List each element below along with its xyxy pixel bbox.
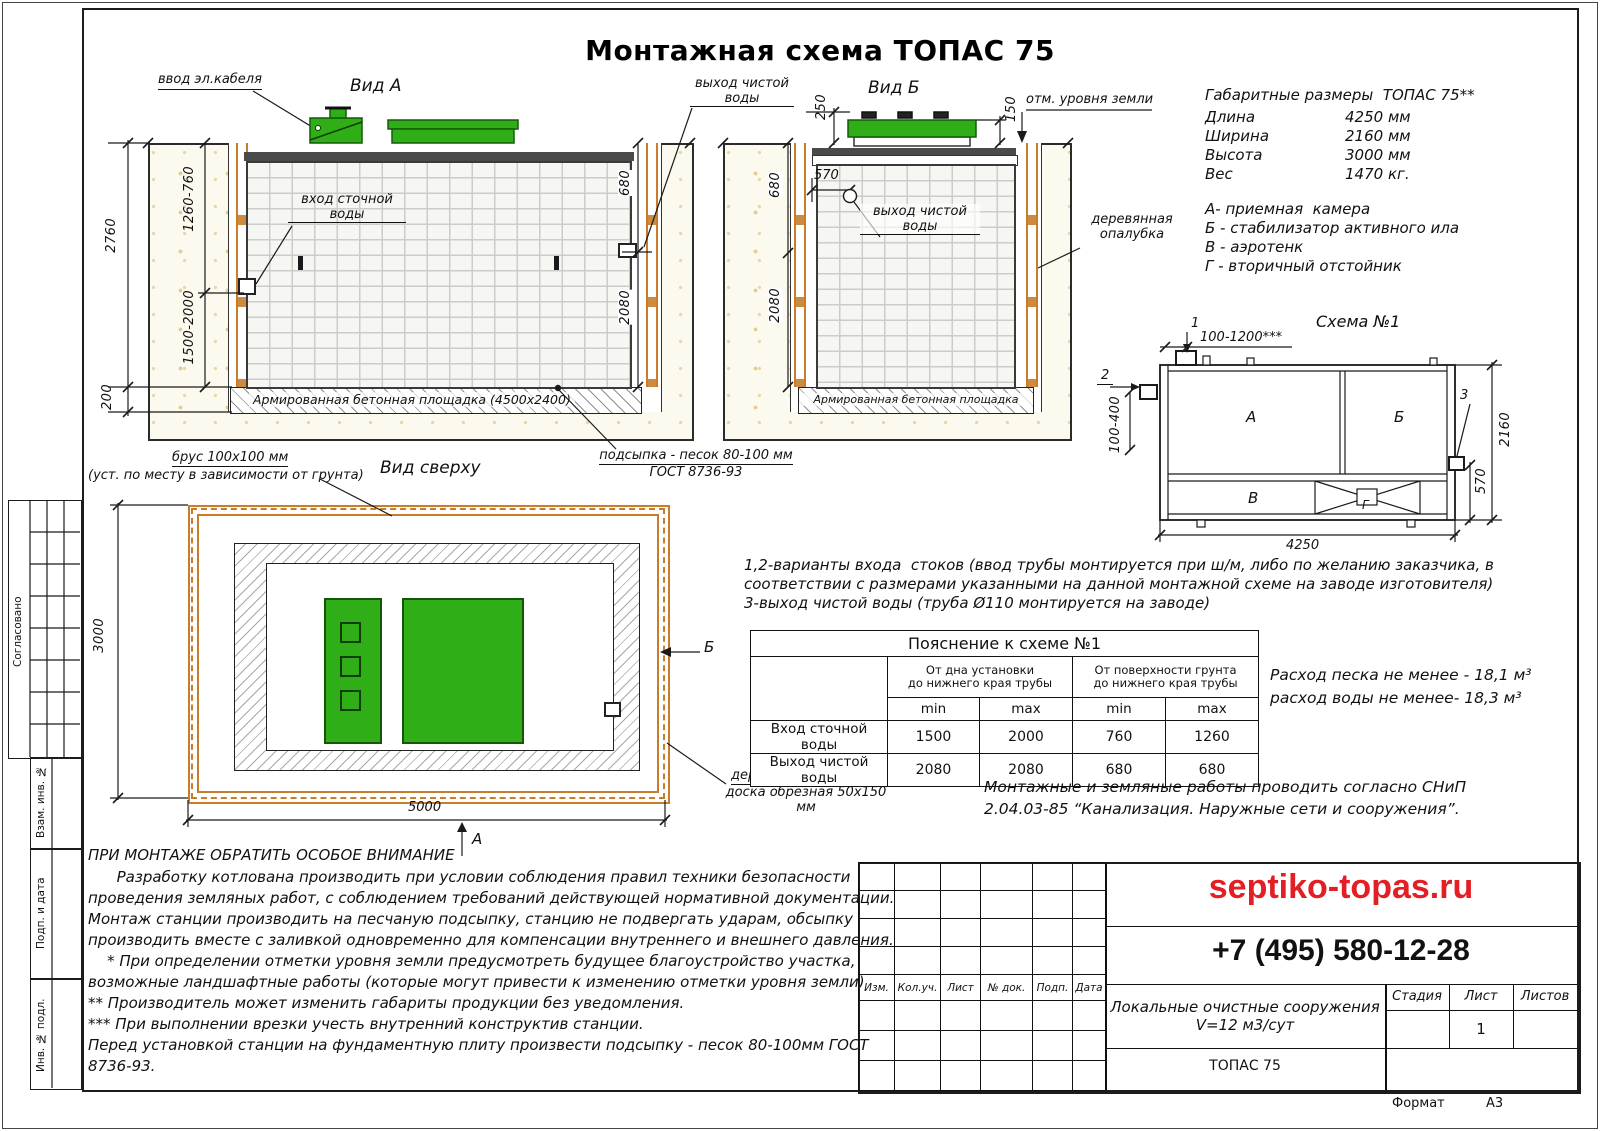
company-phone: +7 (495) 580-12-28	[1105, 934, 1577, 968]
row0-v2: 760	[1073, 721, 1166, 754]
stamp-divider-h1	[1105, 926, 1577, 927]
min-header-1: min	[888, 698, 980, 721]
consumption-note-1: расход воды не менее- 18,3 м³	[1270, 689, 1522, 707]
view-b-unit-top	[812, 148, 1016, 155]
legend-line-2: В - аэротенк	[1205, 238, 1303, 256]
top-view-vent-1	[340, 622, 361, 643]
legend-line-1: Б - стабилизатор активного ила	[1205, 219, 1459, 237]
view-b-dim-250: 250	[814, 94, 829, 120]
view-b-outlet-label: выход чистой воды	[860, 204, 980, 235]
top-view-beam-label: брус 100х100 мм	[172, 450, 288, 467]
schema-dim-570: 570	[1474, 468, 1489, 494]
rev-header-list: Лист	[941, 975, 981, 1001]
attention-line-7: *** При выполнении врезки учесть внутрен…	[88, 1014, 644, 1035]
view-b-unit-body	[816, 164, 1016, 389]
view-b-dim-150: 150	[1004, 96, 1019, 122]
explanation-table-corner	[751, 657, 888, 721]
side-stamp-vzam-label: Взам. инв. №	[35, 762, 47, 842]
rev-header-podp: Подп.	[1033, 975, 1073, 1001]
explanation-table: Пояснение к схеме №1 От дна установки до…	[750, 630, 1259, 787]
overall-dim-value-0: 4250 мм	[1345, 108, 1411, 126]
snip-note-1: 2.04.03-85 “Канализация. Наружные сети и…	[984, 800, 1460, 818]
view-a-dim-2760: 2760	[104, 218, 119, 253]
overall-dim-label-1: Ширина	[1205, 127, 1269, 145]
legend-line-0: А- приемная камера	[1205, 200, 1370, 218]
product-name: ТОПАС 75	[1105, 1058, 1385, 1074]
overall-dim-value-2: 3000 мм	[1345, 146, 1411, 164]
top-view-beam-label2: (уст. по месту в зависимости от грунта)	[88, 468, 364, 483]
sheets-label: Листов	[1513, 989, 1577, 1004]
schema-dim-bottom: 4250	[1286, 538, 1319, 553]
rev-header-izm: Изм.	[859, 975, 895, 1001]
legend-line-3: Г - вторичный отстойник	[1205, 257, 1402, 275]
top-view-arrow-b-label: Б	[704, 638, 714, 656]
table-row: Вход сточной воды 1500 2000 760 1260	[751, 721, 1259, 754]
format-label: Формат	[1392, 1096, 1445, 1111]
attention-line-5: возможные ландшафтные работы (которые мо…	[88, 972, 865, 993]
overall-dim-value-3: 1470 кг.	[1345, 165, 1410, 183]
row1-label: Выход чистой воды	[751, 754, 888, 787]
view-b-dim-570: 570	[814, 168, 839, 183]
sand-note-line1: подсыпка - песок 80-100 мм	[599, 448, 793, 465]
view-a-outlet-pipe	[618, 243, 637, 258]
overall-dim-value-1: 2160 мм	[1345, 127, 1411, 145]
max-header-2: max	[1166, 698, 1259, 721]
attention-line-3: производить вместе с заливкой одновремен…	[88, 930, 894, 951]
attention-line-6: ** Производитель может изменить габариты…	[88, 993, 684, 1014]
view-b-title: Вид Б	[868, 78, 920, 98]
overall-dim-label-2: Высота	[1205, 146, 1263, 164]
rev-header-data: Дата	[1073, 975, 1106, 1001]
top-view-dim-3000: 3000	[92, 618, 107, 653]
stamp-divider-h2	[1105, 984, 1577, 985]
view-a-cable-label: ввод эл.кабеля	[158, 72, 262, 90]
view-b-ground-label: отм. уровня земли	[1026, 92, 1153, 107]
explanation-table-title: Пояснение к схеме №1	[751, 631, 1259, 657]
format-value: А3	[1486, 1096, 1503, 1111]
row0-v3: 1260	[1166, 721, 1259, 754]
view-b-dim-680: 680	[768, 172, 783, 198]
view-a-inlet-pipe	[238, 278, 256, 295]
page-title: Монтажная схема ТОПАС 75	[560, 34, 1080, 67]
variants-note-1: соответствии с размерами указанными на д…	[744, 575, 1493, 593]
schema-dim-right: 2160	[1498, 412, 1513, 447]
sheet-number: 1	[1449, 1020, 1513, 1038]
schema-compartment-v: В	[1248, 489, 1258, 507]
view-b-slab: Армированная бетонная площадка	[798, 387, 1034, 414]
attention-line-0: Разработку котлована производить при усл…	[88, 867, 850, 888]
explanation-table-group1: От дна установки до нижнего края трубы	[888, 657, 1073, 698]
schema-compartment-a: А	[1246, 408, 1256, 426]
top-view-outlet-port	[604, 702, 621, 717]
overall-dims-title: Габаритные размеры ТОПАС 75**	[1205, 86, 1475, 104]
stage-label: Стадия	[1385, 989, 1449, 1004]
view-b-slab-caption: Армированная бетонная площадка	[799, 393, 1033, 406]
schema-dim-top: 100-1200***	[1200, 330, 1282, 345]
drawing-sheet: Согласовано Взам. инв. № Подп. и дата Ин…	[0, 0, 1600, 1131]
rev-header-koluch: Кол.уч.	[895, 975, 941, 1001]
overall-dim-label-0: Длина	[1205, 108, 1255, 126]
view-a-slab-caption: Армированная бетонная площадка (4500х240…	[249, 392, 575, 407]
view-a-inlet-label: вход сточной воды	[288, 192, 406, 223]
group2-line2: до нижнего края трубы	[1073, 677, 1258, 690]
schema-compartment-g: Г	[1362, 498, 1369, 512]
sand-note-line2: ГОСТ 8736-93	[650, 465, 743, 480]
schema-marker-2: 2	[1097, 368, 1113, 385]
row0-label: Вход сточной воды	[751, 721, 888, 754]
explanation-table-group2: От поверхности грунта до нижнего края тр…	[1073, 657, 1259, 698]
view-a-dim-1260-760: 1260-760	[182, 166, 197, 232]
max-header-1: max	[980, 698, 1073, 721]
view-a-slab: Армированная бетонная площадка (4500х240…	[230, 387, 642, 414]
object-name-line2: V=12 м3/сут	[1105, 1016, 1385, 1034]
view-b-formwork-right	[1026, 143, 1038, 387]
view-a-unit-top	[244, 152, 634, 161]
sand-note: подсыпка - песок 80-100 мм ГОСТ 8736-93	[598, 448, 794, 480]
top-view-vent-2	[340, 656, 361, 677]
group1-line2: до нижнего края трубы	[888, 677, 1072, 690]
top-view-arrow-a-label: А	[472, 830, 482, 848]
row0-v1: 2000	[980, 721, 1073, 754]
row0-v0: 1500	[888, 721, 980, 754]
side-stamp-podp-label: Подп. и дата	[35, 868, 47, 958]
variants-note-2: 3-выход чистой воды (труба Ø110 монтируе…	[744, 594, 1210, 612]
revision-table: Изм. Кол.уч. Лист № док. Подп. Дата	[858, 862, 1106, 1091]
attention-line-1: проведения земляных работ, с соблюдением…	[88, 888, 894, 909]
top-view-dim-5000: 5000	[408, 800, 441, 815]
attention-line-2: Монтаж станции производить на песчаную п…	[88, 909, 853, 930]
schema-marker-3: 3	[1460, 388, 1468, 403]
schema-title: Схема №1	[1316, 312, 1400, 331]
schema-marker-1: 1	[1191, 316, 1199, 331]
side-stamp-inv-label: Инв. № подл.	[35, 995, 47, 1075]
attention-title: ПРИ МОНТАЖЕ ОБРАТИТЬ ОСОБОЕ ВНИМАНИЕ	[88, 845, 455, 866]
top-view-vent-3	[340, 690, 361, 711]
view-a-dim-200: 200	[100, 384, 115, 410]
attention-line-4: * При определении отметки уровня земли п…	[88, 951, 856, 972]
side-stamp-agreed-label: Согласовано	[12, 562, 24, 702]
min-header-2: min	[1073, 698, 1166, 721]
consumption-note-0: Расход песка не менее - 18,1 м³	[1270, 666, 1531, 684]
view-b-dim-2080: 2080	[768, 288, 783, 323]
row1-v0: 2080	[888, 754, 980, 787]
view-a-dim-680: 680	[618, 170, 633, 196]
view-a-dim-2080: 2080	[618, 290, 633, 325]
view-a-outlet-label: выход чистой воды	[690, 76, 794, 107]
view-a-dim-1500-2000: 1500-2000	[182, 290, 197, 364]
bottom-formwork-line2: доска обрезная 50х150 мм	[726, 785, 887, 815]
rev-header-ndok: № док.	[981, 975, 1033, 1001]
attention-line-8: Перед установкой станции на фундаментную…	[88, 1035, 869, 1056]
view-b-formwork-left	[794, 143, 806, 387]
stamp-divider-h3	[1105, 1048, 1577, 1049]
attention-line-9: 8736-93.	[88, 1056, 155, 1077]
view-a-title: Вид А	[350, 76, 402, 96]
stamp-divider-h4	[1385, 1010, 1577, 1011]
variants-note-0: 1,2-варианты входа стоков (ввод трубы мо…	[744, 556, 1494, 574]
view-a-formwork-right	[646, 143, 658, 387]
schema-compartment-b: Б	[1394, 408, 1404, 426]
overall-dim-label-3: Вес	[1205, 165, 1233, 183]
view-b-formwork-label: деревянная опалубка	[1078, 212, 1186, 242]
schema-dim-left: 100-400	[1108, 396, 1123, 453]
snip-note-0: Монтажные и земляные работы проводить со…	[984, 778, 1466, 796]
top-view-green-hatch-large	[402, 598, 524, 744]
company-site: septiko-topas.ru	[1105, 868, 1577, 907]
top-view-title: Вид сверху	[380, 458, 481, 478]
object-name-line1: Локальные очистные сооружения	[1105, 998, 1385, 1016]
object-name: Локальные очистные сооружения V=12 м3/су…	[1105, 998, 1385, 1034]
sheet-label: Лист	[1449, 989, 1513, 1004]
